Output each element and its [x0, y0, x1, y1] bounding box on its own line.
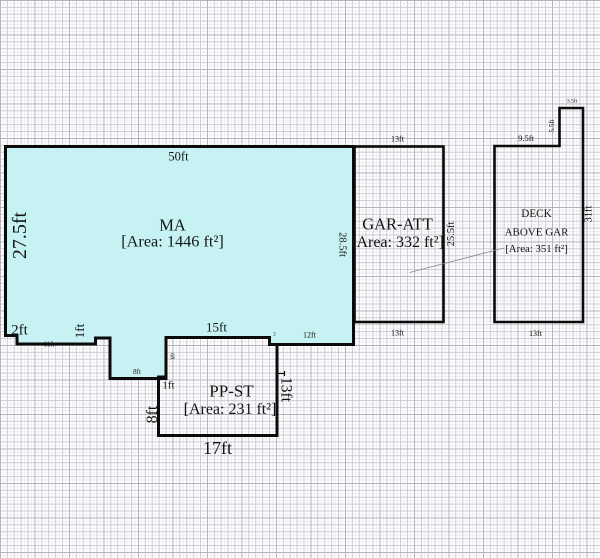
svg-text:13ft: 13ft [391, 135, 405, 144]
svg-text:9.5ft: 9.5ft [518, 133, 534, 143]
svg-text:28.5ft: 28.5ft [337, 232, 348, 257]
svg-text:[Area: 351 ft²]: [Area: 351 ft²] [505, 243, 568, 255]
svg-text:[Area: 1446 ft²]: [Area: 1446 ft²] [121, 232, 224, 251]
svg-text:GAR-ATT: GAR-ATT [362, 215, 433, 234]
svg-text:13ft: 13ft [391, 329, 405, 338]
svg-text:25.5ft: 25.5ft [446, 222, 457, 247]
svg-text:[Area: 332 ft²]: [Area: 332 ft²] [351, 234, 444, 251]
svg-text:11ft: 11ft [43, 341, 54, 349]
svg-text:31ft: 31ft [584, 205, 595, 222]
svg-text:8ft: 8ft [133, 368, 141, 376]
svg-text:1ft: 1ft [162, 380, 174, 392]
svg-text:8ft: 8ft [144, 405, 161, 423]
svg-text:2ft: 2ft [11, 323, 28, 339]
svg-text:3.5ft: 3.5ft [567, 98, 578, 105]
svg-text:6ft: 6ft [169, 353, 176, 360]
svg-text:5.5ft: 5.5ft [548, 119, 556, 132]
svg-text:DECK: DECK [521, 208, 551, 220]
svg-text:PP-ST: PP-ST [209, 382, 254, 401]
svg-text:17ft: 17ft [203, 438, 232, 458]
svg-text:15ft: 15ft [206, 320, 227, 335]
svg-text:ABOVE GAR: ABOVE GAR [505, 227, 570, 239]
svg-text:50ft: 50ft [168, 150, 189, 164]
svg-text:27.5ft: 27.5ft [9, 211, 31, 259]
svg-text:13ft: 13ft [529, 329, 543, 338]
svg-text:13ft: 13ft [278, 377, 295, 403]
svg-text:[Area: 231 ft²]: [Area: 231 ft²] [184, 401, 277, 418]
svg-text:1ft: 1ft [72, 323, 87, 338]
svg-text:12ft: 12ft [303, 331, 317, 340]
